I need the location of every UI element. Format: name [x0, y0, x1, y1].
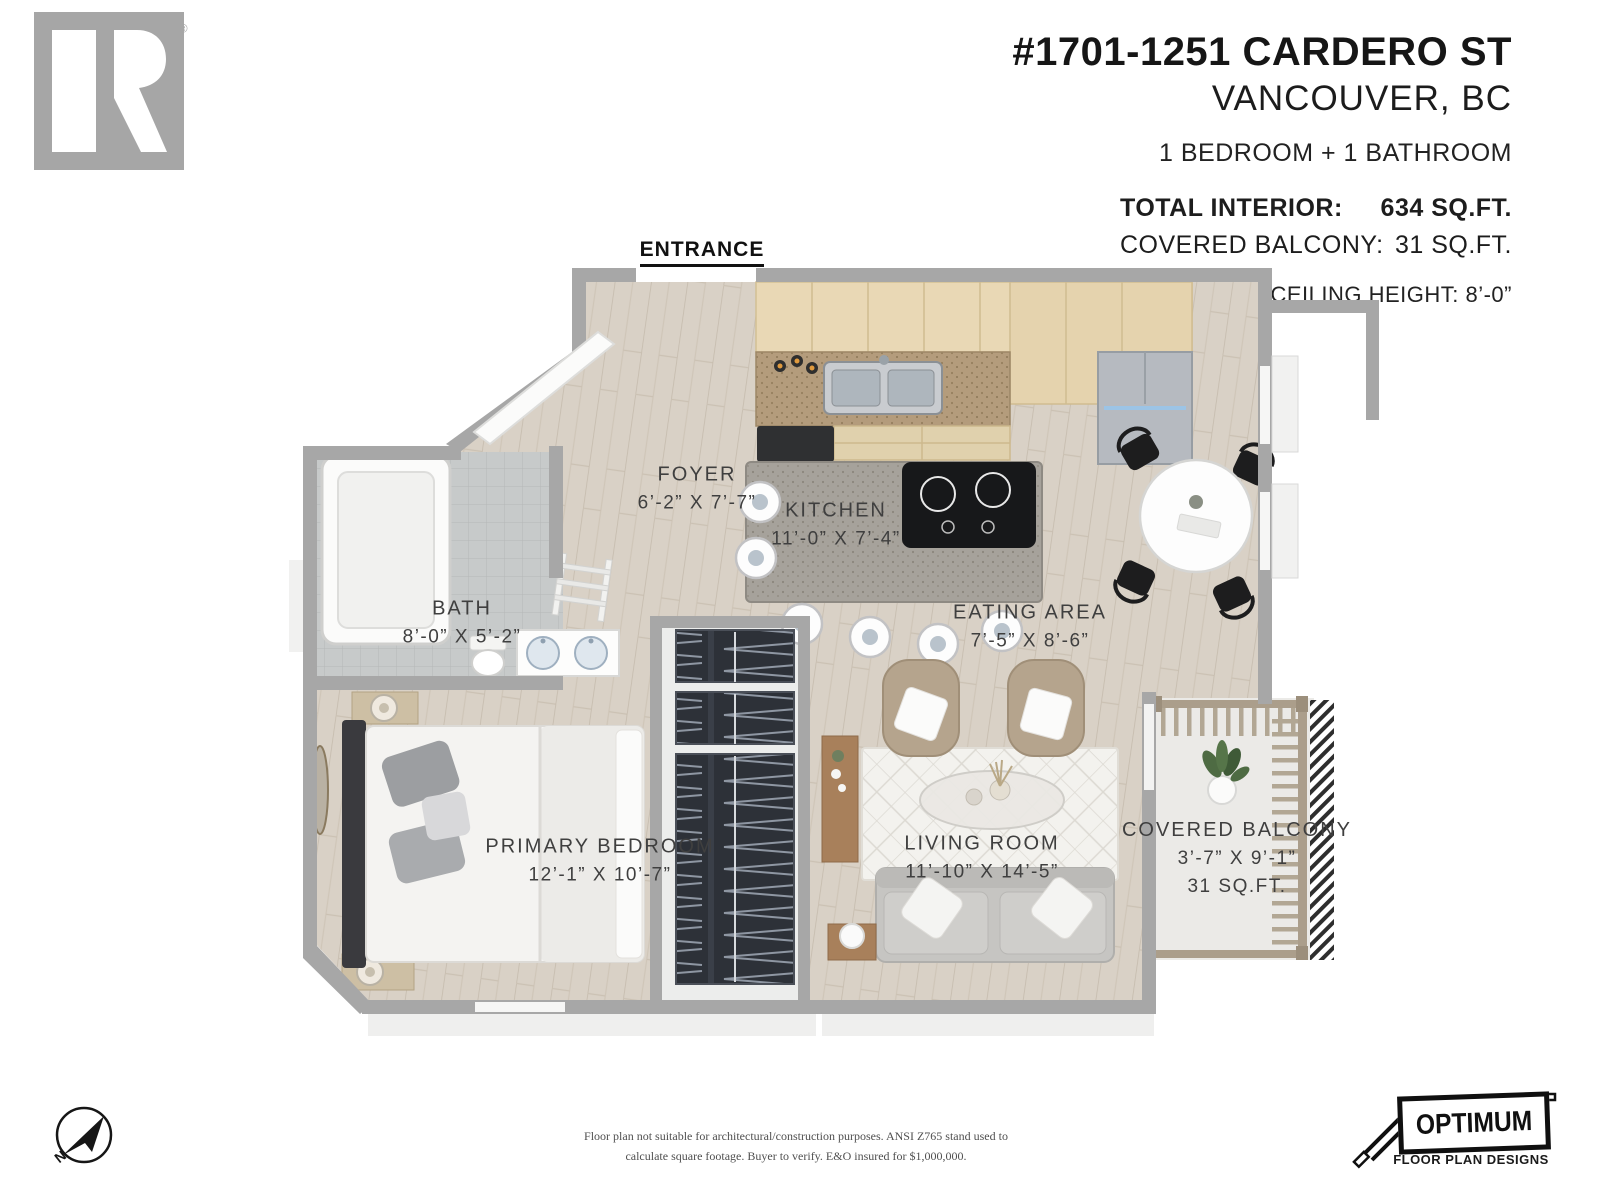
- side-table: [828, 924, 876, 960]
- room-name: EATING AREA: [953, 599, 1107, 628]
- room-dimensions: 3’-7” X 9’-1”: [1122, 845, 1352, 873]
- optimum-name: OPTIMUM: [1415, 1105, 1532, 1141]
- room-name: PRIMARY BEDROOM: [485, 833, 714, 862]
- north-compass-icon: N: [46, 1096, 122, 1174]
- room-name: LIVING ROOM: [904, 830, 1059, 859]
- room-area: 31 SQ.FT.: [1122, 873, 1352, 901]
- room-label-primary-bedroom: PRIMARY BEDROOM 12’-1” X 10’-7”: [485, 833, 714, 890]
- room-label-covered-balcony: COVERED BALCONY 3’-7” X 9’-1” 31 SQ.FT.: [1122, 816, 1352, 900]
- kitchen-sink: [824, 355, 942, 414]
- room-name: FOYER: [638, 461, 757, 490]
- room-dimensions: 8’-0” X 5’-2”: [403, 624, 522, 652]
- room-name: KITCHEN: [771, 497, 900, 526]
- room-dimensions: 7’-5” X 8’-6”: [953, 628, 1107, 656]
- room-dimensions: 11’-10” X 14’-5”: [904, 859, 1059, 887]
- disclaimer-text: Floor plan not suitable for architectura…: [573, 1126, 1019, 1167]
- compass-north-label: N: [51, 1147, 69, 1166]
- room-name: COVERED BALCONY: [1122, 816, 1352, 845]
- armchair: [1008, 660, 1084, 756]
- armchair: [883, 660, 959, 756]
- room-name: BATH: [403, 595, 522, 624]
- disclaimer-line-1: Floor plan not suitable for architectura…: [573, 1126, 1019, 1146]
- optimum-tagline: FLOOR PLAN DESIGNS: [1392, 1152, 1550, 1167]
- vanity-double-sink: [517, 630, 619, 676]
- balcony-railing: [1156, 700, 1306, 708]
- disclaimer-line-2: calculate square footage. Buyer to verif…: [573, 1146, 1019, 1166]
- room-dimensions: 11’-0” X 7’-4”: [771, 526, 900, 554]
- room-label-living-room: LIVING ROOM 11’-10” X 14’-5”: [904, 830, 1059, 887]
- optimum-box: OPTIMUM: [1397, 1091, 1551, 1154]
- dishwasher: [757, 426, 834, 462]
- kitchen-cabinets: [756, 282, 1192, 464]
- room-label-eating-area: EATING AREA 7’-5” X 8’-6”: [953, 599, 1107, 656]
- floor-plan-svg: [0, 0, 1600, 1200]
- optimum-logo: OPTIMUM FLOOR PLAN DESIGNS: [1352, 1090, 1598, 1174]
- room-label-foyer: FOYER 6’-2” X 7’-7”: [638, 461, 757, 518]
- room-label-kitchen: KITCHEN 11’-0” X 7’-4”: [771, 497, 900, 554]
- dining-table: [1140, 460, 1252, 572]
- room-label-bath: BATH 8’-0” X 5’-2”: [403, 595, 522, 652]
- room-dimensions: 12’-1” X 10’-7”: [485, 862, 714, 890]
- cooktop: [902, 462, 1036, 548]
- room-dimensions: 6’-2” X 7’-7”: [638, 490, 757, 518]
